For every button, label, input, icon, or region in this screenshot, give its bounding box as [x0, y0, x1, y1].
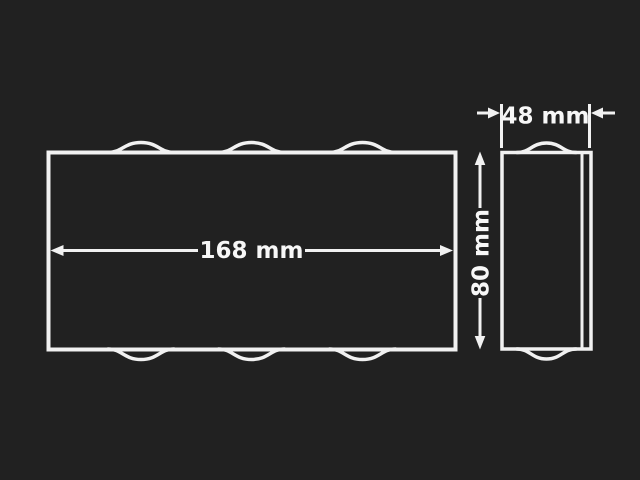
drawing-background — [0, 0, 640, 480]
width-dimension-label: 168 mm — [200, 238, 304, 264]
technical-drawing: 168 mm 48 mm — [0, 0, 640, 480]
dimension-diagram-canvas: 168 mm 48 mm — [0, 0, 640, 480]
height-dimension-label: 80 mm — [469, 209, 495, 297]
depth-dimension-label: 48 mm — [502, 104, 590, 130]
